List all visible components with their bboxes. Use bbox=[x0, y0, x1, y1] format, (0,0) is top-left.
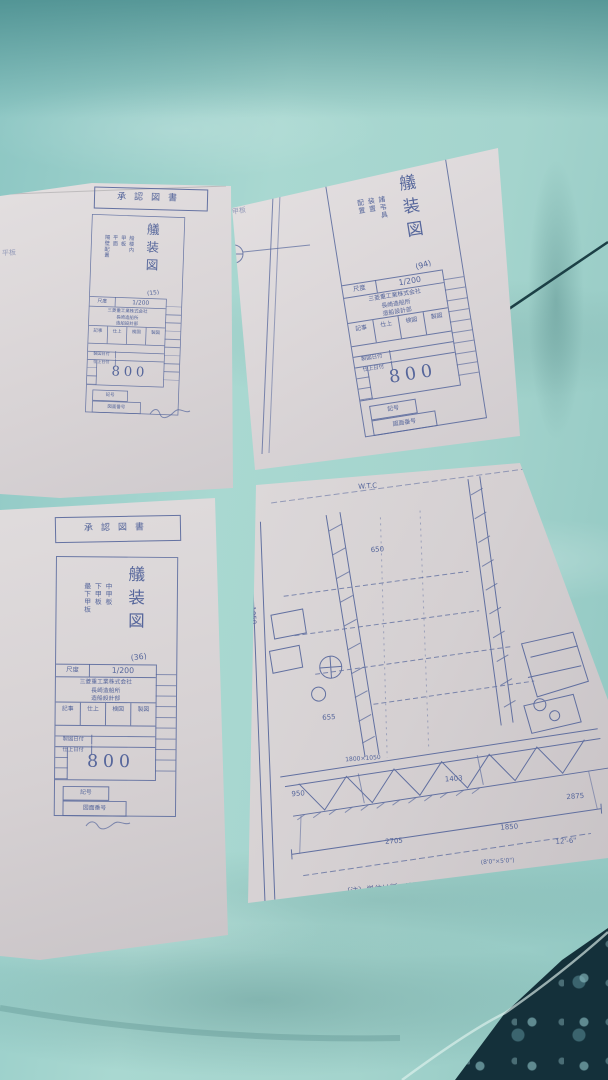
paper-sheet-3: 承認図書 艤装図 中甲板 下甲板 最下甲板 (36) 尺度 1/200 三菱重工… bbox=[0, 494, 236, 964]
dimension-label: 1403 bbox=[445, 774, 463, 783]
date-row: 仕上日付 bbox=[55, 736, 155, 748]
approval-cell: 製図 bbox=[424, 308, 452, 334]
approval-cell: 記事 bbox=[348, 320, 377, 346]
dimension-label: 950 bbox=[291, 789, 305, 798]
title-block-3: 艤装図 中甲板 下甲板 最下甲板 (36) 尺度 1/200 三菱重工業株式会社… bbox=[54, 556, 178, 817]
scale-value: 1/200 bbox=[90, 664, 156, 677]
truss-diagonals bbox=[297, 740, 588, 812]
leader-line bbox=[243, 245, 310, 252]
sheet-number: (36) bbox=[130, 652, 147, 663]
approval-cell: 仕上 bbox=[373, 316, 402, 342]
dimension-label: 650 bbox=[370, 545, 384, 554]
date-row: 製図日付 bbox=[55, 726, 155, 738]
drawing-subtitle: 船楼内 甲板 平面 隔壁配置 bbox=[102, 234, 135, 259]
scale-label: 尺度 bbox=[56, 664, 90, 677]
dimension-lines bbox=[283, 567, 535, 710]
footer-box: 図面番号 bbox=[92, 401, 141, 415]
dimension-label: W.T.C bbox=[358, 482, 377, 491]
dimension-label: 1850 bbox=[500, 823, 518, 832]
title-area: 艤装図 中甲板 下甲板 最下甲板 (36) bbox=[56, 557, 157, 666]
approval-cell: 検図 bbox=[127, 327, 147, 345]
drawing-subtitle: 中甲板 下甲板 最下甲板 bbox=[82, 582, 114, 613]
drawing-subtitle: 諸弔具 装置 配置 bbox=[354, 195, 390, 223]
dimension-label: 12'-6" bbox=[555, 836, 577, 845]
approval-cell: 製図 bbox=[131, 703, 155, 726]
dimension-label: 655 bbox=[322, 713, 336, 722]
footer-box: 図面番号 bbox=[62, 801, 126, 817]
approval-cell: 仕上 bbox=[107, 326, 127, 344]
base-dimension-line bbox=[290, 804, 604, 860]
approval-cell: 製図 bbox=[146, 328, 165, 346]
stamp-text: 承認図書 bbox=[84, 522, 152, 533]
drawing-title: 艤装図 bbox=[141, 222, 161, 276]
scale-label: 尺度 bbox=[90, 296, 116, 307]
revision-strip bbox=[155, 665, 176, 782]
paper-sheet-1: 承認図書 艤装図 船楼内 甲板 平面 隔壁配置 (15) 尺度 1/200 三菱… bbox=[0, 176, 236, 502]
revision-strip bbox=[163, 299, 182, 388]
approval-stamp-box: 承認図書 bbox=[55, 515, 181, 543]
approval-cell: 仕上 bbox=[81, 703, 106, 726]
drawing-number-row: 800 bbox=[55, 747, 155, 781]
approval-stamp-box: 承認図書 bbox=[94, 187, 209, 212]
title-area: 艤装図 船楼内 甲板 平面 隔壁配置 (15) bbox=[90, 215, 169, 300]
pillar-right bbox=[468, 475, 513, 726]
handwritten-squiggle bbox=[86, 822, 130, 829]
footer-box: 記号 bbox=[63, 786, 110, 801]
dimension-label: 2875 bbox=[566, 792, 584, 801]
scale-row: 尺度 1/200 bbox=[56, 664, 156, 678]
drawing-number-row: 800 bbox=[87, 360, 164, 388]
sheet-number: (15) bbox=[146, 289, 159, 297]
drawing-title: 艤装図 bbox=[122, 565, 147, 635]
approval-cell: 検図 bbox=[106, 703, 131, 726]
approval-cell: 記事 bbox=[88, 326, 108, 344]
company-block: 三菱重工業株式会社 長崎造船所 造船設計部 bbox=[56, 677, 156, 703]
approval-cell: 検図 bbox=[398, 312, 427, 338]
approval-cell: 記事 bbox=[55, 702, 80, 725]
photo-scene: 承認図書 艤装図 船楼内 甲板 平面 隔壁配置 (15) 尺度 1/200 三菱… bbox=[0, 0, 608, 1080]
drawing-number: 800 bbox=[96, 363, 164, 381]
truss-chords bbox=[278, 728, 608, 817]
drawing-number: 800 bbox=[67, 751, 155, 772]
margin-note: 平板 bbox=[2, 248, 17, 259]
stamp-text: 承認図書 bbox=[117, 192, 185, 204]
company-block: 三菱重工業株式会社 長崎造船所 造船設計部 bbox=[89, 306, 166, 328]
dimension-label: 2705 bbox=[385, 837, 403, 846]
drawing-title: 艤装図 bbox=[392, 172, 427, 246]
title-block-1: 艤装図 船楼内 甲板 平面 隔壁配置 (15) 尺度 1/200 三菱重工業株式… bbox=[85, 214, 185, 415]
sheet-number: (94) bbox=[414, 258, 432, 271]
approval-row: 記事 仕上 検図 製図 bbox=[55, 702, 155, 726]
